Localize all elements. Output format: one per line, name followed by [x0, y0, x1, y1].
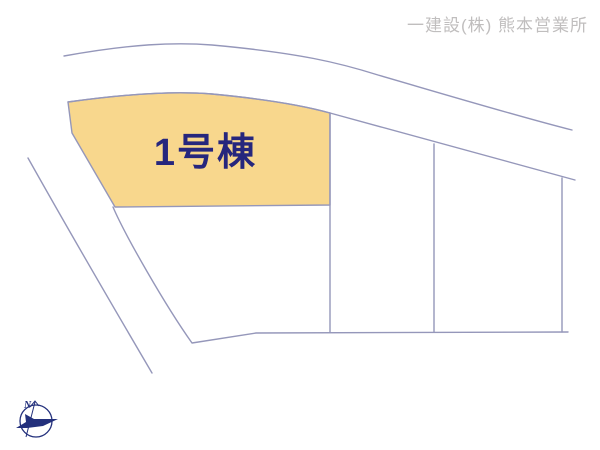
site-plan: 一建設(株) 熊本営業所 1号棟 N: [0, 0, 600, 450]
plot-1-label: 1号棟: [133, 130, 278, 176]
plot-map: [0, 0, 600, 450]
compass-north-label: N: [23, 400, 32, 411]
north-compass-icon: N: [14, 397, 60, 445]
bottom-boundary-line: [113, 207, 568, 343]
